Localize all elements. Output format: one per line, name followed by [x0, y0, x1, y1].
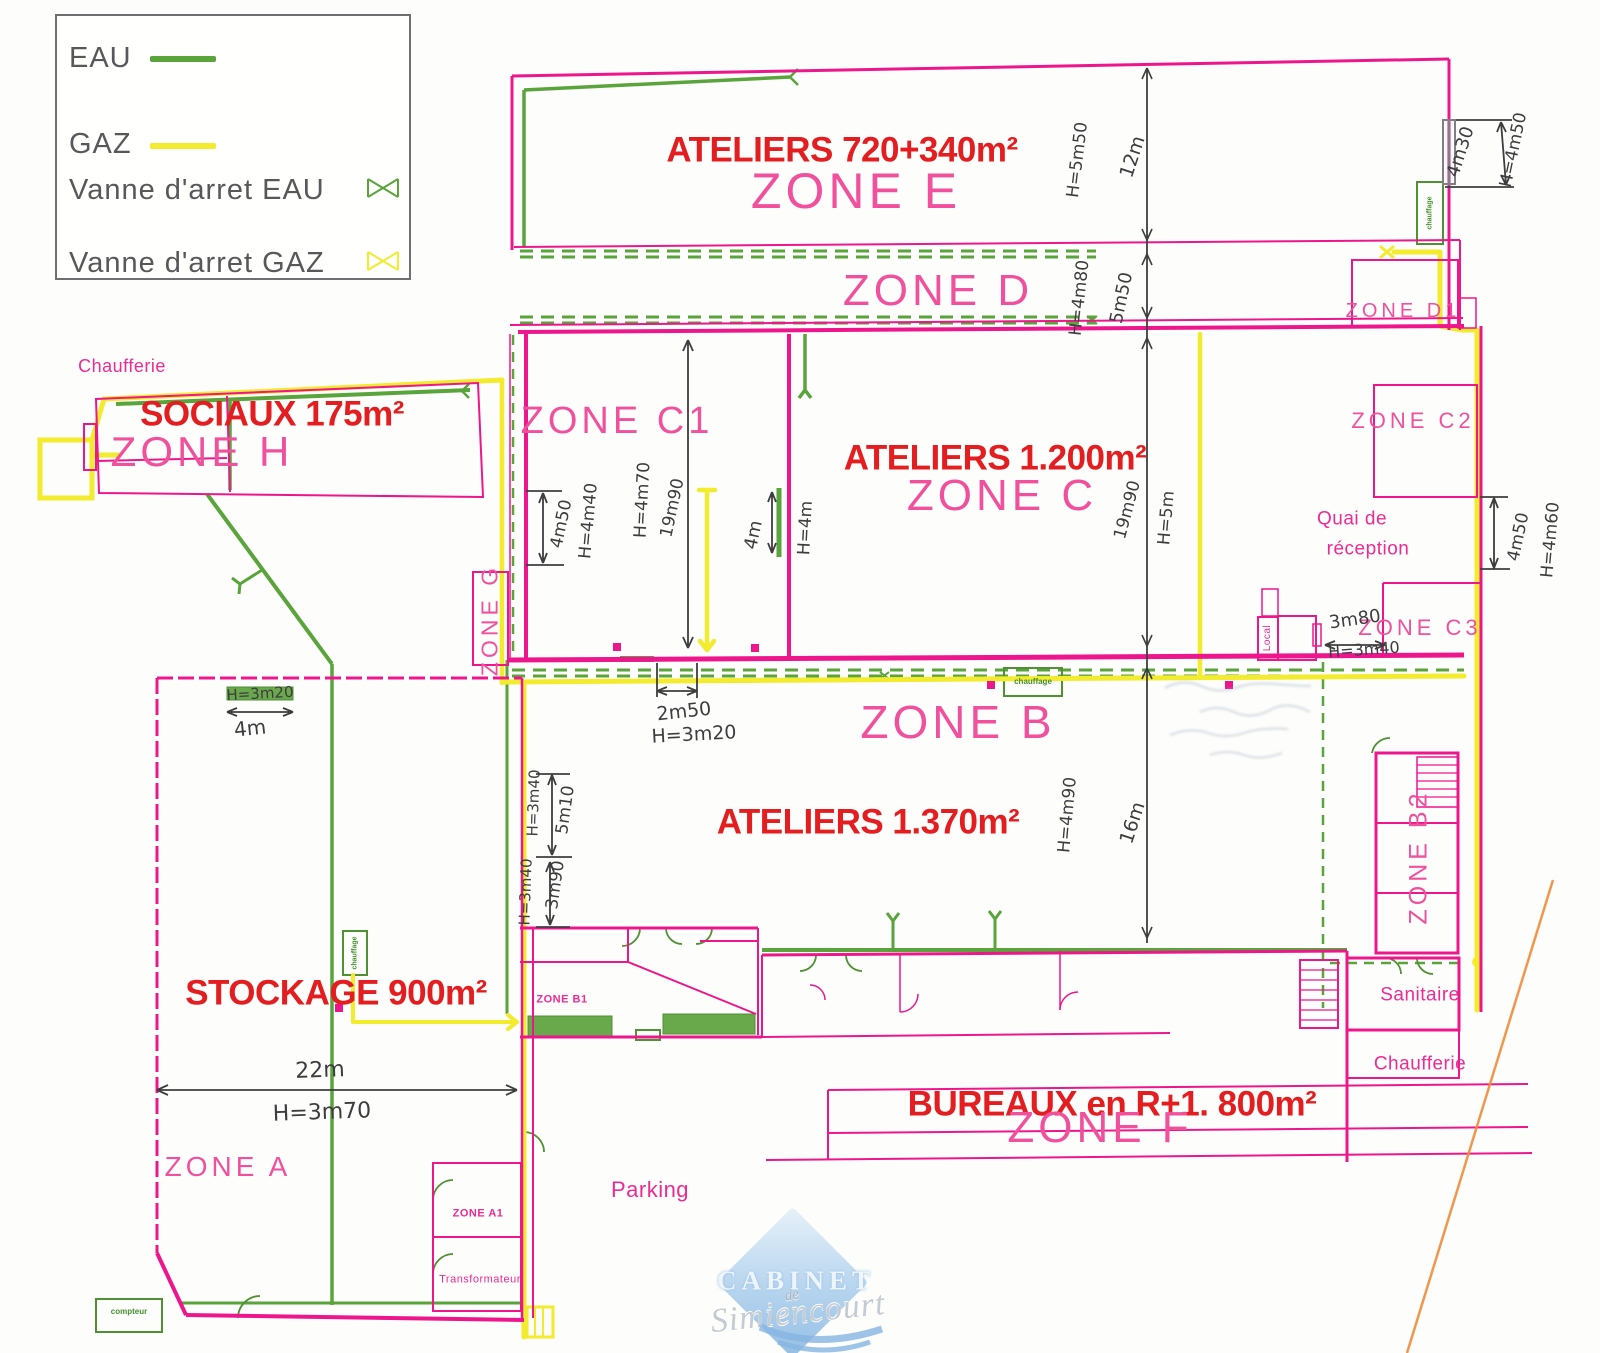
area-label-sociaux: SOCIAUX 175m² — [140, 397, 404, 432]
floor-plan-page: CABINET de Simiencourt — [0, 0, 1600, 1353]
dim-h3m70: H=3m70 — [272, 1100, 371, 1125]
zone-label-h: ZONE H — [111, 431, 294, 473]
dim-h4m: H=4m — [796, 500, 816, 555]
room-label-chaufferie-top: Chaufferie — [78, 357, 166, 375]
room-label-local: Local — [1263, 625, 1273, 651]
room-label-quai-2: réception — [1327, 540, 1410, 559]
zone-label-c1: ZONE C1 — [521, 402, 714, 440]
zone-label-a1: ZONE A1 — [453, 1209, 504, 1220]
zone-label-g: ZONE G — [479, 564, 502, 676]
dim-h5m: H=5m — [1156, 490, 1178, 546]
dim-h3m20-b: H=3m20 — [651, 723, 737, 746]
dim-4m-a: 4m — [233, 716, 267, 739]
zone-label-d: ZONE D — [843, 269, 1033, 313]
dim-22m: 22m — [295, 1059, 345, 1083]
area-label-stockage: STOCKAGE 900m² — [185, 976, 487, 1011]
water-line-swatch — [150, 56, 216, 62]
zone-label-a: ZONE A — [165, 1153, 292, 1181]
dim-h3m40-2: H=3m40 — [517, 858, 534, 926]
dim-h4m70: H=4m70 — [633, 462, 654, 539]
zone-label-b: ZONE B — [860, 699, 1055, 745]
equip-label-chauffage-1: chauffage — [1427, 196, 1434, 229]
legend-label-eau: EAU — [69, 42, 132, 75]
gas-line-swatch — [150, 143, 216, 149]
legend-label-vanne-gaz: Vanne d'arret GAZ — [69, 247, 325, 280]
illegible-smudge — [1165, 682, 1311, 757]
zone-label-b1: ZONE B1 — [536, 995, 587, 1006]
legend: EAU GAZ Vanne d'arret EAU Vanne d'arret … — [55, 14, 411, 280]
equip-label-compteur: compteur — [111, 1308, 147, 1316]
legend-label-gaz: GAZ — [69, 128, 132, 161]
zone-label-f: ZONE F — [1007, 1106, 1192, 1150]
gas-valve-icon — [365, 249, 401, 273]
zone-label-b2: ZONE B2 — [1407, 790, 1432, 925]
room-label-transformateur: Transformateur — [439, 1275, 521, 1286]
zone-label-e: ZONE E — [751, 166, 961, 216]
equip-label-chauffage-3: chauffage — [1014, 678, 1052, 686]
dim-h3m40-1: H=3m40 — [525, 769, 542, 837]
room-label-parking: Parking — [611, 1179, 689, 1201]
equip-label-chauffage-2: chauffage — [352, 936, 359, 969]
zone-label-c2: ZONE C2 — [1351, 410, 1474, 432]
watermark-waves — [760, 1327, 882, 1350]
zone-label-d1: ZONE D1 — [1346, 301, 1461, 321]
room-label-quai-1: Quai de — [1317, 510, 1387, 529]
water-valve-icon — [365, 176, 401, 200]
legend-label-vanne-eau: Vanne d'arret EAU — [69, 174, 325, 207]
area-label-ateliers-1370: ATELIERS 1.370m² — [717, 805, 1020, 840]
room-label-chaufferie-bottom: Chaufferie — [1374, 1055, 1466, 1074]
room-label-sanitaire: Sanitaire — [1380, 986, 1460, 1005]
dim-h3m20-a: H=3m20 — [226, 685, 294, 703]
zone-label-c: ZONE C — [907, 474, 1097, 518]
